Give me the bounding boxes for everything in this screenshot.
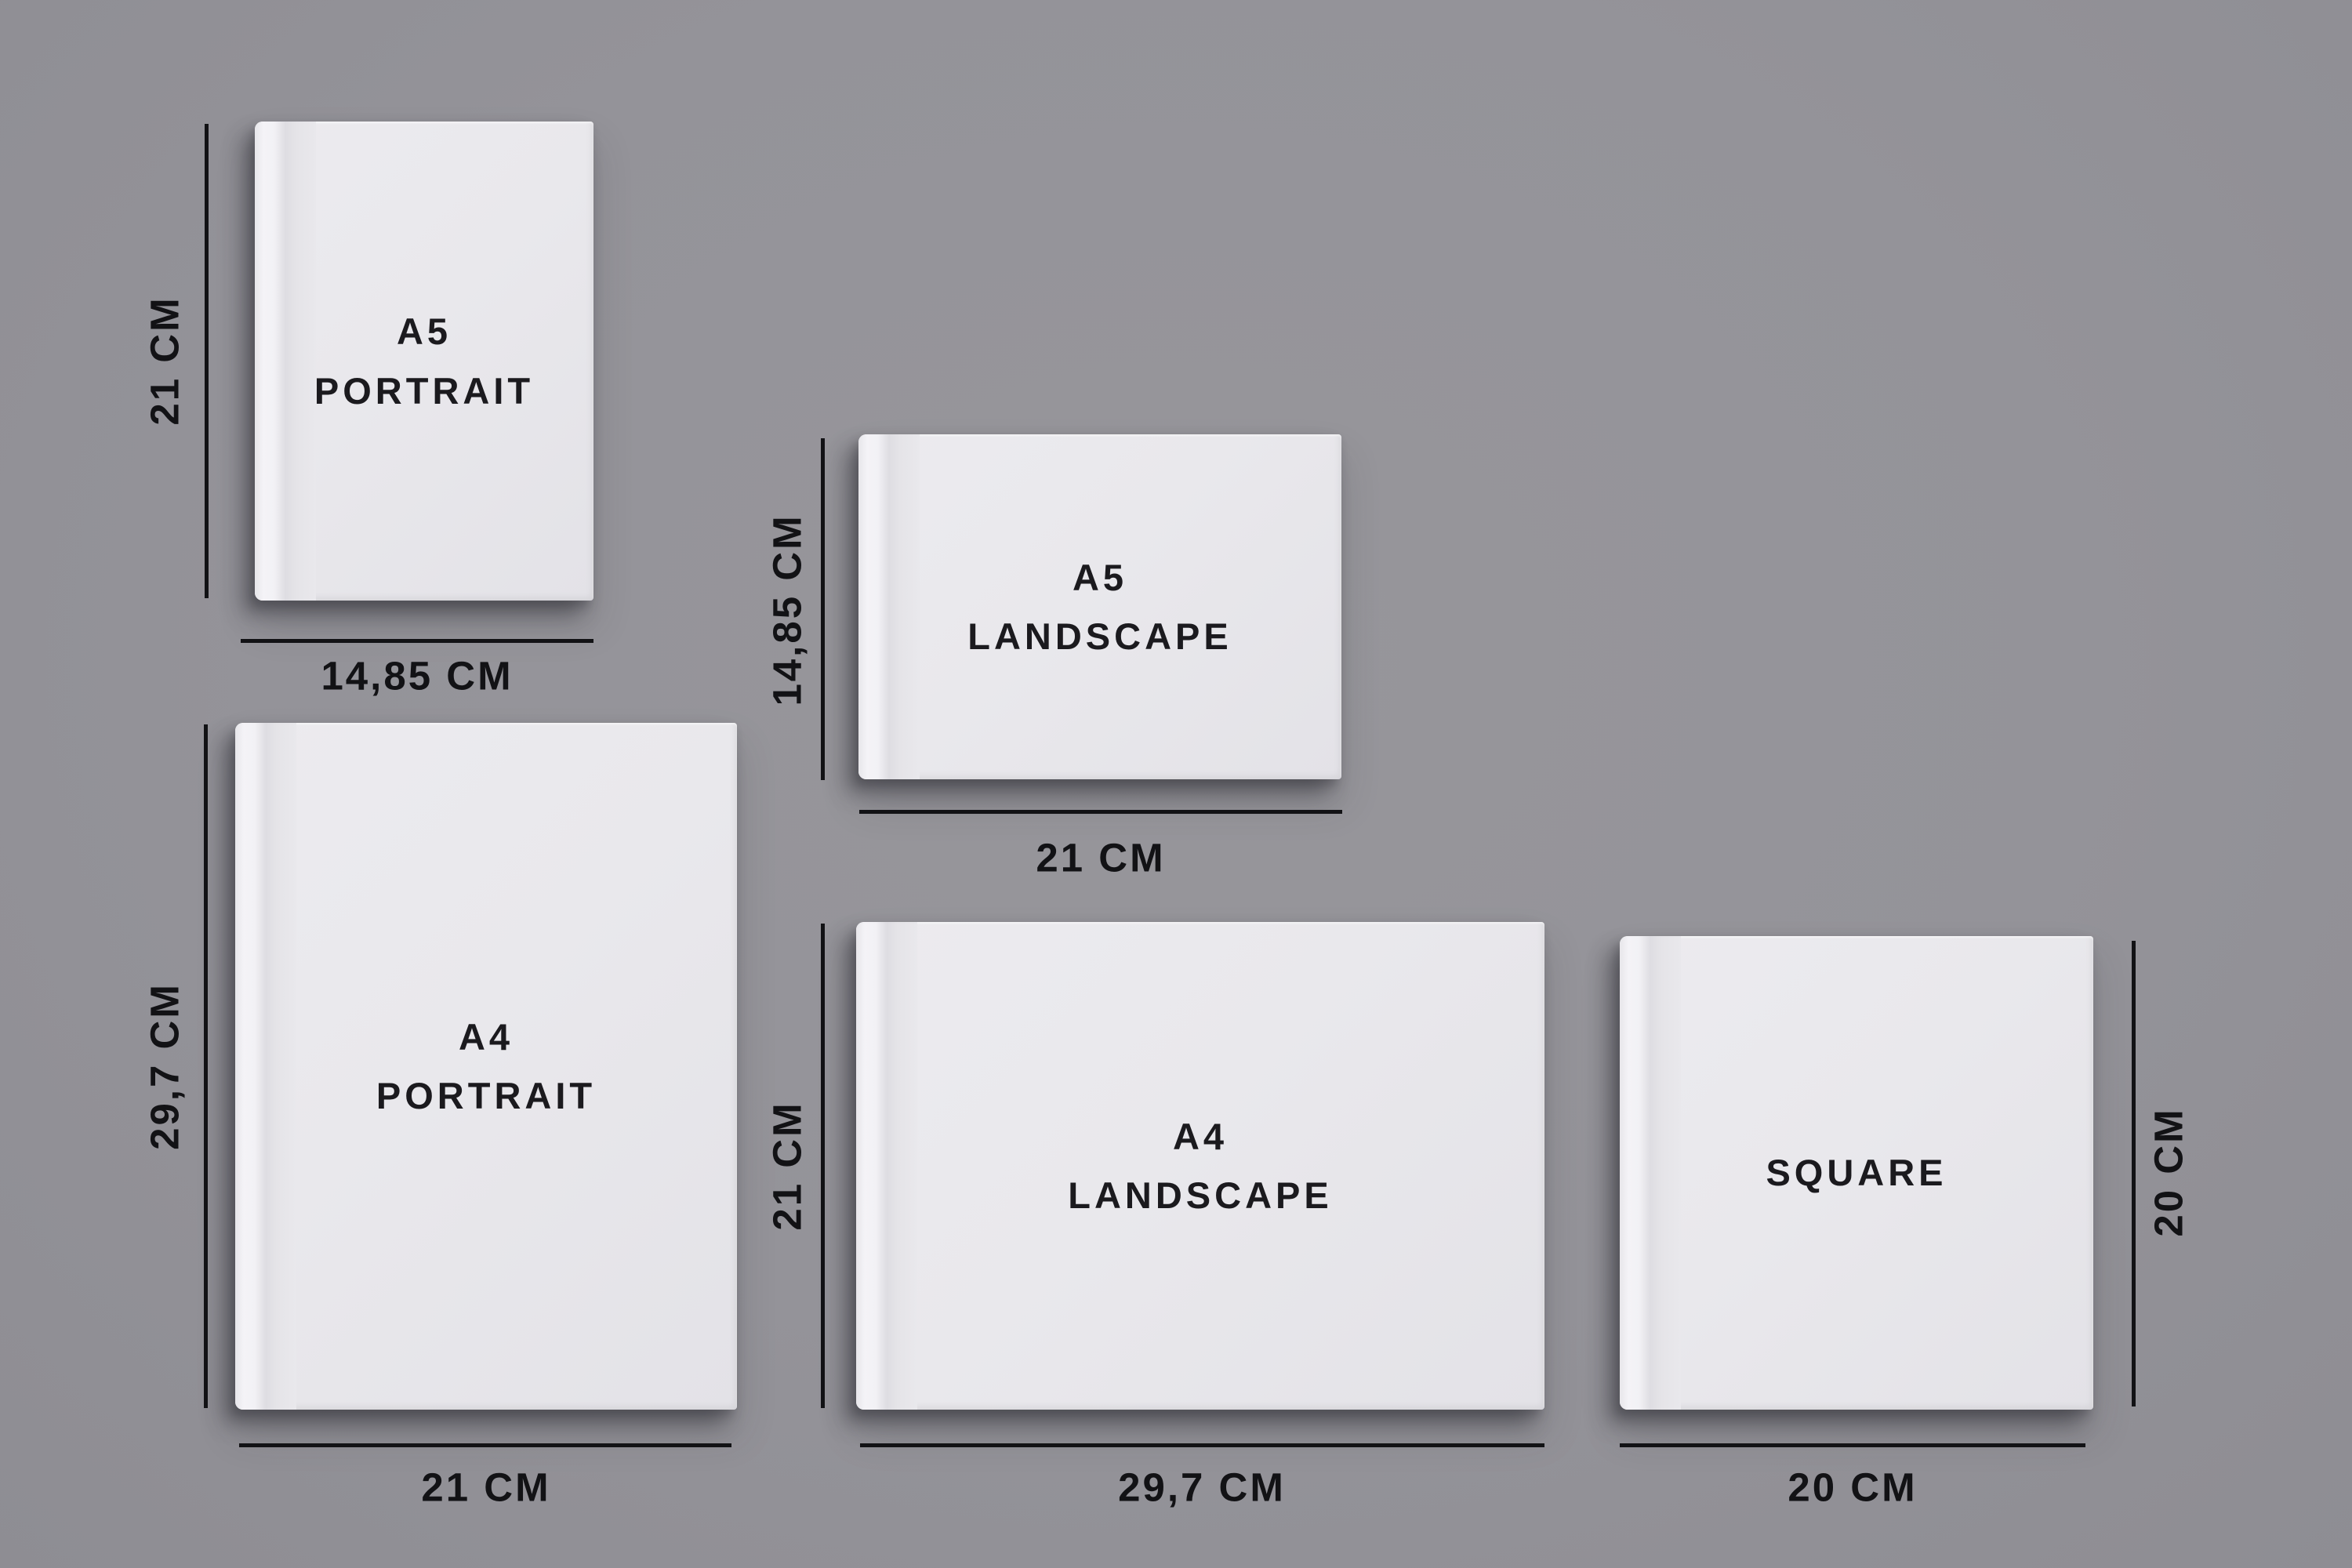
size-comparison-diagram: { "page": { "description": "Photo book s… bbox=[0, 0, 2352, 1568]
height-dimension-label: 20 CM bbox=[2146, 1107, 2192, 1236]
book-title: A4 LANDSCAPE bbox=[856, 922, 1544, 1410]
height-dimension-label: 29,7 CM bbox=[142, 982, 188, 1150]
width-dimension-line bbox=[239, 1443, 731, 1447]
height-dimension-line bbox=[821, 924, 825, 1408]
height-dimension-label: 14,85 CM bbox=[764, 514, 811, 706]
width-dimension-label: 14,85 CM bbox=[321, 653, 513, 699]
book-square: SQUARE bbox=[1620, 936, 2093, 1410]
width-dimension-line bbox=[241, 639, 593, 643]
book-a5-landscape: A5 LANDSCAPE bbox=[858, 434, 1341, 779]
width-dimension-line bbox=[859, 810, 1342, 814]
width-dimension-label: 29,7 CM bbox=[1118, 1465, 1286, 1511]
book-title: A4 PORTRAIT bbox=[235, 723, 737, 1410]
width-dimension-label: 20 CM bbox=[1788, 1465, 1917, 1511]
height-dimension-line bbox=[2132, 941, 2136, 1406]
height-dimension-line bbox=[205, 124, 209, 598]
book-title: A5 PORTRAIT bbox=[255, 122, 593, 601]
height-dimension-line bbox=[204, 724, 208, 1408]
height-dimension-label: 21 CM bbox=[142, 296, 188, 425]
width-dimension-label: 21 CM bbox=[1036, 835, 1165, 881]
width-dimension-label: 21 CM bbox=[421, 1465, 550, 1511]
book-a4-landscape: A4 LANDSCAPE bbox=[856, 922, 1544, 1410]
book-title: SQUARE bbox=[1620, 936, 2093, 1410]
width-dimension-line bbox=[860, 1443, 1544, 1447]
height-dimension-label: 21 CM bbox=[764, 1101, 811, 1230]
book-a5-portrait: A5 PORTRAIT bbox=[255, 122, 593, 601]
book-a4-portrait: A4 PORTRAIT bbox=[235, 723, 737, 1410]
width-dimension-line bbox=[1620, 1443, 2085, 1447]
book-title: A5 LANDSCAPE bbox=[858, 434, 1341, 779]
height-dimension-line bbox=[821, 438, 825, 780]
